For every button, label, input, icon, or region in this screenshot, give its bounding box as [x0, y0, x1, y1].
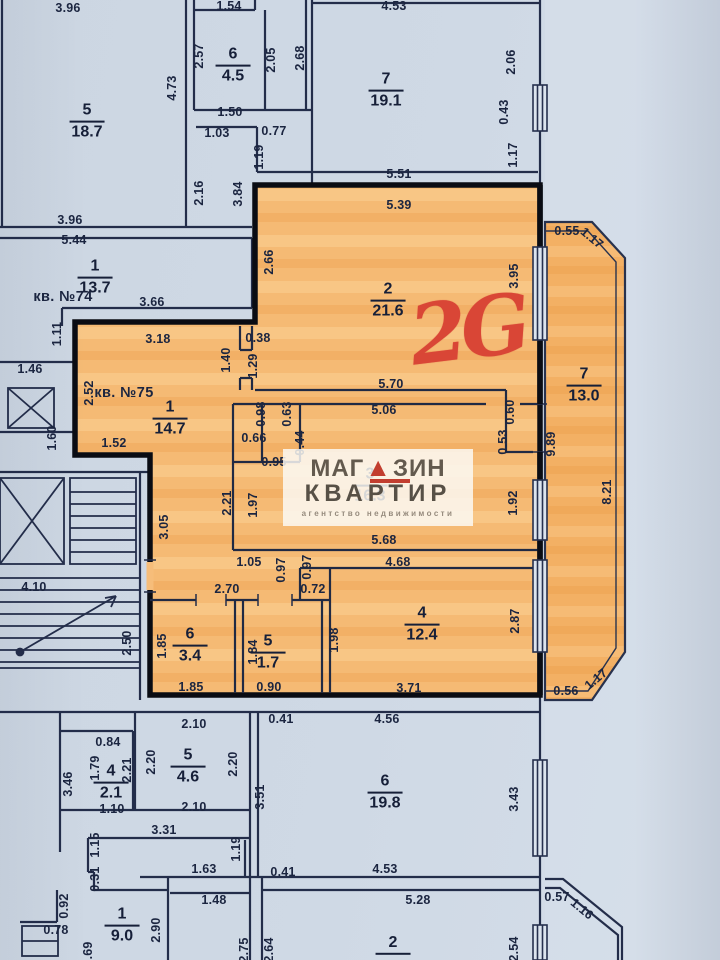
- window-icon: [533, 560, 547, 652]
- logo-red-underline: [370, 479, 410, 483]
- apartment-outline: [75, 185, 540, 695]
- agency-name: КВАРТИР: [305, 481, 452, 506]
- window-icon: [533, 85, 547, 131]
- window-icon: [533, 760, 547, 856]
- logo-text-left: МАГ: [310, 457, 364, 481]
- floor-plan-canvas: 3.961.544.532.572.052.684.732.061.500.43…: [0, 0, 720, 960]
- balcony-outline: [545, 222, 625, 700]
- logo-triangle-icon: ▲: [365, 457, 392, 478]
- window-icon: [533, 925, 547, 960]
- stairs-direction-arrow: [20, 596, 116, 652]
- stairwell-details: [0, 388, 140, 956]
- agency-watermark: МАГ▲ЗИН КВАРТИР агентство недвижимости: [283, 449, 473, 526]
- window-icon: [533, 480, 547, 540]
- agency-logo: МАГ▲ЗИН: [310, 457, 445, 481]
- logo-text-right: ЗИН: [393, 457, 446, 481]
- handwritten-apartment-mark: 2G: [406, 289, 529, 372]
- agency-subtitle: агентство недвижимости: [302, 509, 455, 518]
- window-icon: [533, 247, 547, 340]
